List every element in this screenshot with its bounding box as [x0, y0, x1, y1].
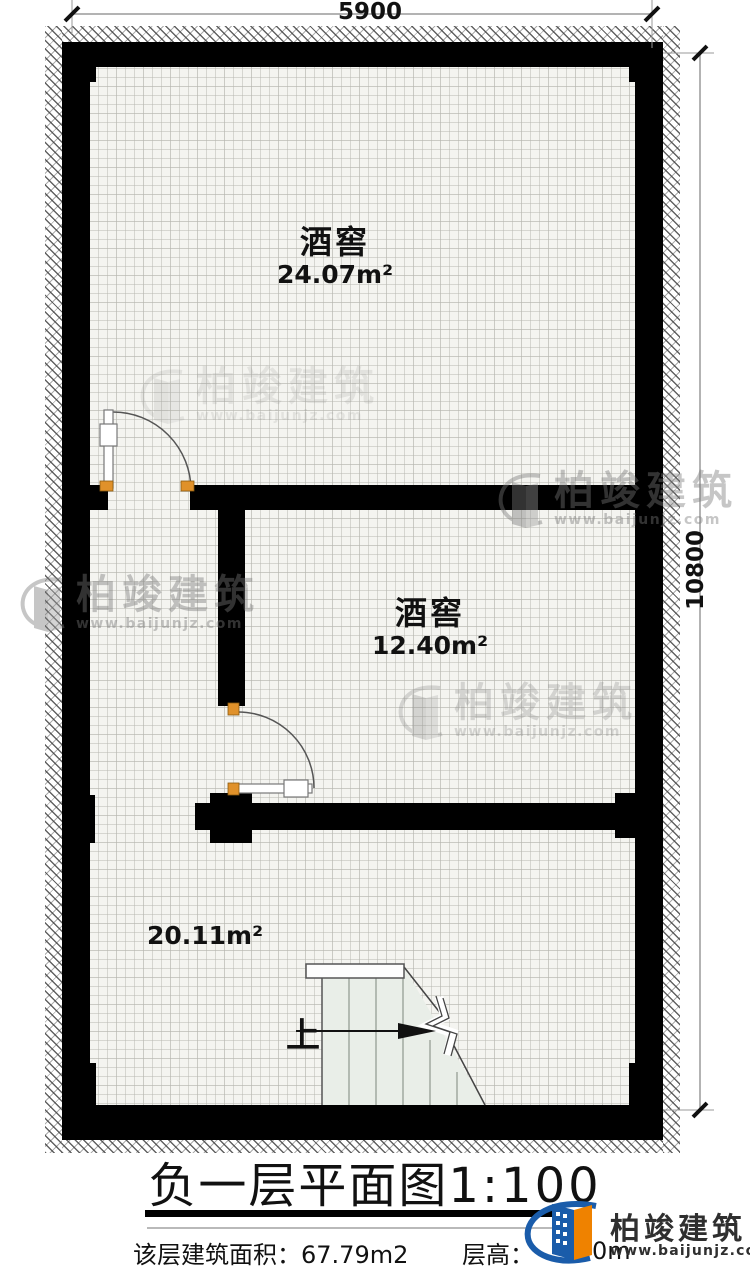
- dimension-height: 10800: [683, 536, 709, 610]
- floorplan-page: 5900 10800 酒窖 24.07m² 酒窖 12.40m² 20.11m²…: [0, 0, 750, 1276]
- brand-logo: 柏竣建筑 www.baijunjz.com: [518, 1196, 750, 1276]
- watermark-url: www.baijunjz.com: [76, 616, 260, 632]
- watermark-logo-icon: [138, 366, 192, 440]
- hatch-strip-right: [663, 26, 680, 1153]
- watermark-name: 柏竣建筑: [196, 366, 380, 408]
- brand-logo-icon: [518, 1196, 618, 1274]
- room1-area: 24.07m²: [240, 261, 430, 290]
- brand-url: www.baijunjz.com: [610, 1243, 750, 1259]
- room1-name: 酒窖: [240, 224, 430, 261]
- watermark-logo-icon: [18, 574, 72, 648]
- watermark-url: www.baijunjz.com: [454, 724, 638, 740]
- floor-area-text: 该层建筑面积：67.79m2: [133, 1235, 408, 1270]
- watermark-name: 柏竣建筑: [454, 682, 638, 724]
- pilaster-bottom-left: [62, 1063, 96, 1105]
- room-label-basement-hall: 20.11m²: [120, 922, 290, 951]
- pilaster-bottom-right: [629, 1063, 663, 1105]
- watermark-1: 柏竣建筑 www.baijunjz.com: [138, 366, 380, 440]
- floor-area-value: 67.79m2: [301, 1241, 408, 1269]
- brand-name: 柏竣建筑: [610, 1204, 746, 1248]
- wall-bottom: [62, 1105, 663, 1140]
- watermark-4: 柏竣建筑 www.baijunjz.com: [396, 682, 638, 756]
- title-text: 负一层平面图: [148, 1158, 448, 1214]
- room-label-wine-cellar-1: 酒窖 24.07m²: [240, 224, 430, 290]
- stairs-up-label: 上: [286, 1008, 320, 1057]
- wall-lower: [195, 803, 635, 830]
- watermark-url: www.baijunjz.com: [554, 512, 738, 528]
- floor-area-label: 该层建筑面积：: [133, 1241, 301, 1269]
- room2-area: 12.40m²: [335, 632, 525, 661]
- pilaster-right-lower: [615, 793, 643, 838]
- watermark-url: www.baijunjz.com: [196, 408, 380, 424]
- hatch-strip-top: [45, 26, 680, 42]
- wall-top: [62, 42, 663, 67]
- wall-right: [635, 42, 663, 1140]
- room3-area: 20.11m²: [120, 922, 290, 951]
- pilaster-top-left: [62, 42, 96, 82]
- watermark-3: 柏竣建筑 www.baijunjz.com: [496, 470, 738, 544]
- watermark-name: 柏竣建筑: [554, 470, 738, 512]
- watermark-logo-icon: [496, 470, 550, 544]
- watermark-logo-icon: [396, 682, 450, 756]
- dimension-width: 5900: [330, 0, 410, 25]
- pilaster-top-right: [629, 42, 663, 82]
- room-label-wine-cellar-2: 酒窖 12.40m²: [335, 595, 525, 661]
- wall-middle-left-stub: [90, 485, 108, 510]
- watermark-2: 柏竣建筑 www.baijunjz.com: [18, 574, 260, 648]
- room2-name: 酒窖: [335, 595, 525, 632]
- pilaster-left-lower: [62, 795, 95, 843]
- wall-lower-t-block: [210, 793, 252, 843]
- watermark-name: 柏竣建筑: [76, 574, 260, 616]
